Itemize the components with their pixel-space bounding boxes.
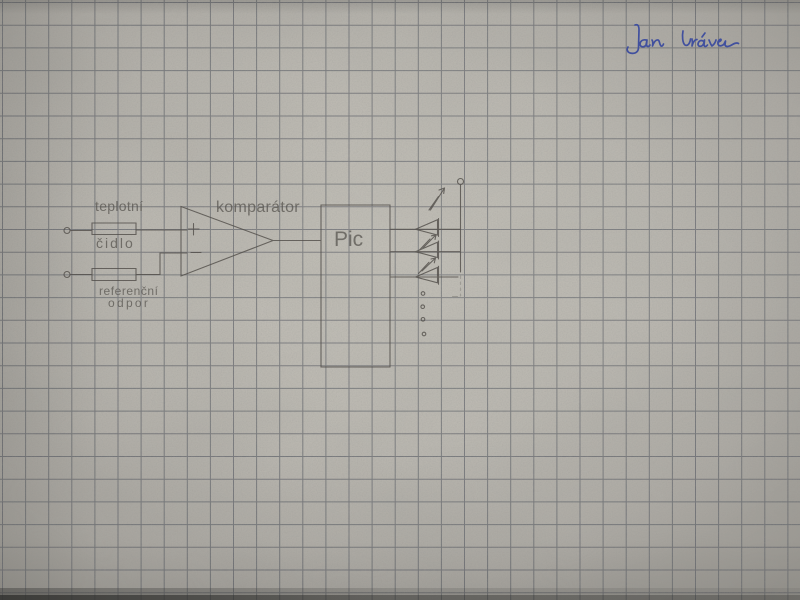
svg-text:Pic: Pic (334, 228, 363, 251)
svg-text:teplotní: teplotní (95, 198, 143, 214)
svg-text:komparátor: komparátor (216, 199, 300, 216)
svg-text:odpor: odpor (108, 296, 150, 310)
svg-text:čidlo: čidlo (96, 235, 135, 251)
